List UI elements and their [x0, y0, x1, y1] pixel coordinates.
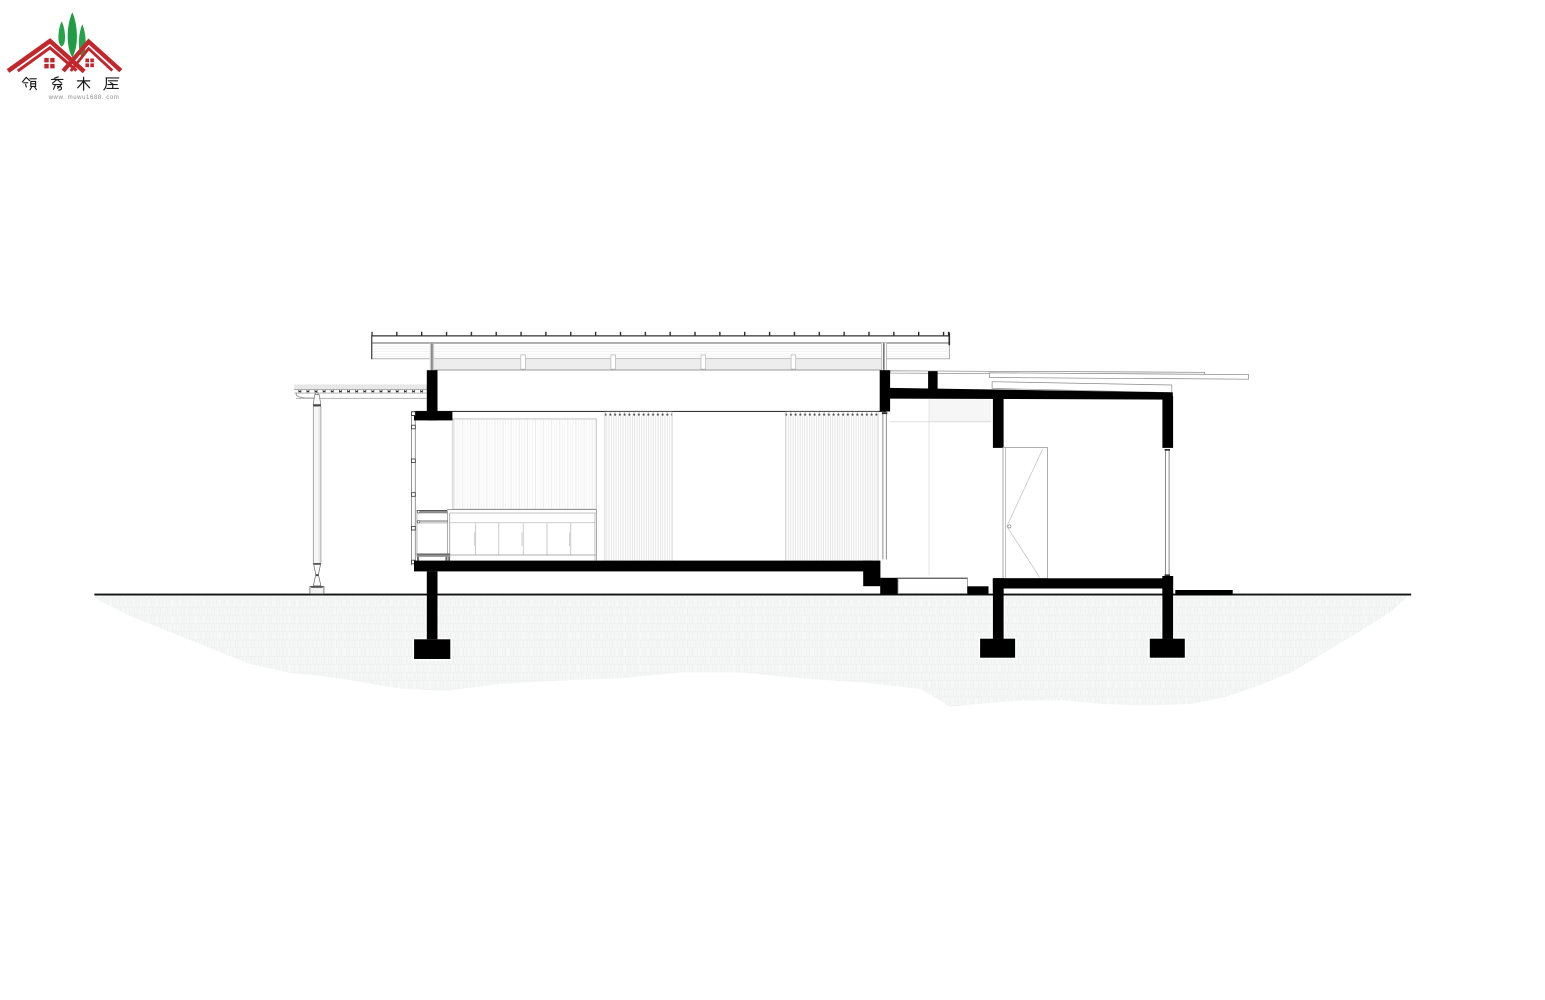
svg-text:www. muwu1688. com: www. muwu1688. com: [48, 94, 120, 101]
